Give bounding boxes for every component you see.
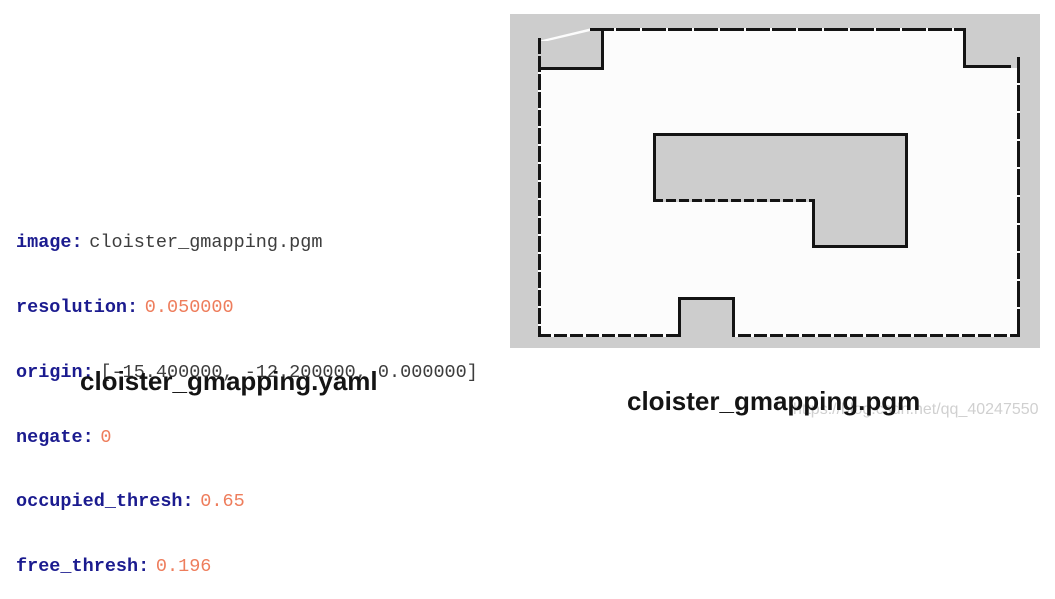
map-wall-left bbox=[538, 38, 541, 334]
yaml-file-caption: cloister_gmapping.yaml bbox=[80, 366, 378, 397]
occupancy-grid-map-image bbox=[510, 14, 1040, 348]
yaml-key: free_thresh bbox=[16, 556, 138, 577]
yaml-colon: : bbox=[127, 297, 138, 318]
yaml-colon: : bbox=[83, 427, 94, 448]
yaml-key: occupied_thresh bbox=[16, 491, 183, 512]
yaml-key: negate bbox=[16, 427, 83, 448]
map-wall-bottom-left bbox=[538, 334, 681, 337]
yaml-value: 0.196 bbox=[156, 556, 212, 577]
yaml-colon: : bbox=[72, 232, 83, 253]
yaml-value: cloister_gmapping.pgm bbox=[89, 232, 322, 253]
yaml-key: resolution bbox=[16, 297, 127, 318]
yaml-colon: : bbox=[138, 556, 149, 577]
yaml-line: negate:0 bbox=[16, 427, 478, 449]
yaml-key: origin bbox=[16, 362, 83, 383]
yaml-value: 0.050000 bbox=[145, 297, 234, 318]
yaml-value: 0.65 bbox=[200, 491, 244, 512]
pgm-file-caption: cloister_gmapping.pgm bbox=[627, 386, 920, 417]
yaml-value: 0 bbox=[100, 427, 111, 448]
yaml-line: resolution:0.050000 bbox=[16, 297, 478, 319]
map-central-obstacle-bottom-wall bbox=[653, 199, 815, 202]
map-bottom-pillar bbox=[678, 297, 735, 337]
map-alcove-top-right-bottom-wall bbox=[963, 65, 1011, 68]
yaml-line: occupied_thresh:0.65 bbox=[16, 491, 478, 513]
map-wall-right bbox=[1017, 57, 1020, 337]
yaml-colon: : bbox=[183, 491, 194, 512]
map-central-obstacle-upper bbox=[653, 133, 908, 202]
map-central-obstacle-lower bbox=[812, 202, 908, 248]
map-wall-bottom-right bbox=[738, 334, 1020, 337]
map-alcove-top-right bbox=[963, 28, 1040, 68]
map-wall-top bbox=[590, 28, 965, 31]
yaml-line: image:cloister_gmapping.pgm bbox=[16, 232, 478, 254]
yaml-line: free_thresh:0.196 bbox=[16, 556, 478, 578]
yaml-key: image bbox=[16, 232, 72, 253]
